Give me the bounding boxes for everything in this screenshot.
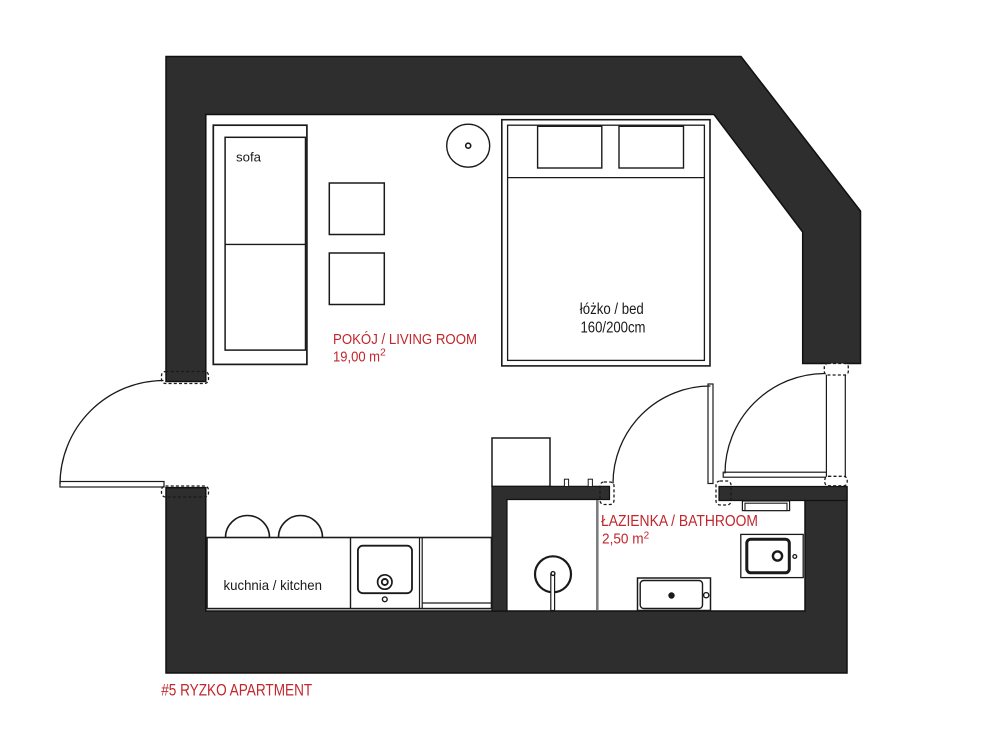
svg-text:19,00 m2: 19,00 m2	[333, 347, 386, 366]
svg-text:ŁAZIENKA / BATHROOM: ŁAZIENKA / BATHROOM	[601, 513, 758, 530]
svg-text:sofa: sofa	[236, 150, 262, 165]
svg-text:kuchnia / kitchen: kuchnia / kitchen	[224, 577, 323, 593]
svg-text:POKÓJ / LIVING ROOM: POKÓJ / LIVING ROOM	[333, 331, 477, 348]
svg-text:łóżko / bed: łóżko / bed	[580, 301, 644, 318]
svg-text:160/200cm: 160/200cm	[581, 319, 646, 336]
svg-text:2,50 m2: 2,50 m2	[602, 530, 650, 547]
svg-text:#5 RYZKO APARTMENT: #5 RYZKO APARTMENT	[161, 682, 312, 700]
